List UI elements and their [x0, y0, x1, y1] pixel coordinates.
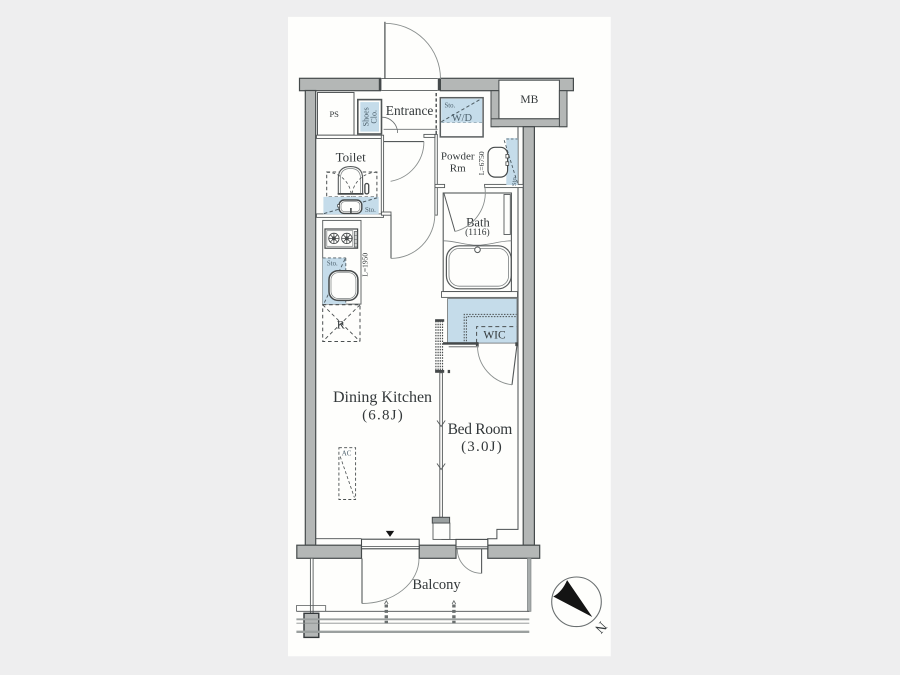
svg-text:MB: MB	[520, 94, 538, 106]
svg-text:Powder: Powder	[441, 151, 475, 163]
svg-text:Rm: Rm	[450, 162, 466, 174]
svg-text:W/D: W/D	[452, 113, 473, 124]
svg-text:(6.8J): (6.8J)	[362, 407, 404, 423]
svg-text:Balcony: Balcony	[412, 577, 461, 593]
svg-text:WIC: WIC	[483, 329, 506, 341]
svg-text:Entrance: Entrance	[386, 103, 434, 118]
svg-text:Clo.: Clo.	[370, 110, 379, 124]
svg-text:Sto.: Sto.	[445, 102, 456, 109]
svg-text:(1116): (1116)	[465, 227, 490, 238]
svg-text:AC: AC	[342, 450, 352, 458]
svg-text:R: R	[337, 318, 345, 332]
svg-text:Sto.: Sto.	[365, 207, 376, 214]
svg-text:Dining Kitchen: Dining Kitchen	[333, 389, 432, 406]
svg-text:Sto.: Sto.	[327, 260, 338, 267]
svg-text:L=1950: L=1950	[360, 253, 369, 277]
svg-text:(3.0J): (3.0J)	[461, 439, 503, 455]
svg-text:L=6750: L=6750	[477, 151, 486, 175]
svg-text:Sto.: Sto.	[511, 175, 518, 186]
svg-text:PS: PS	[329, 109, 339, 119]
svg-text:Toilet: Toilet	[336, 150, 367, 165]
svg-text:Bed Room: Bed Room	[448, 421, 513, 438]
